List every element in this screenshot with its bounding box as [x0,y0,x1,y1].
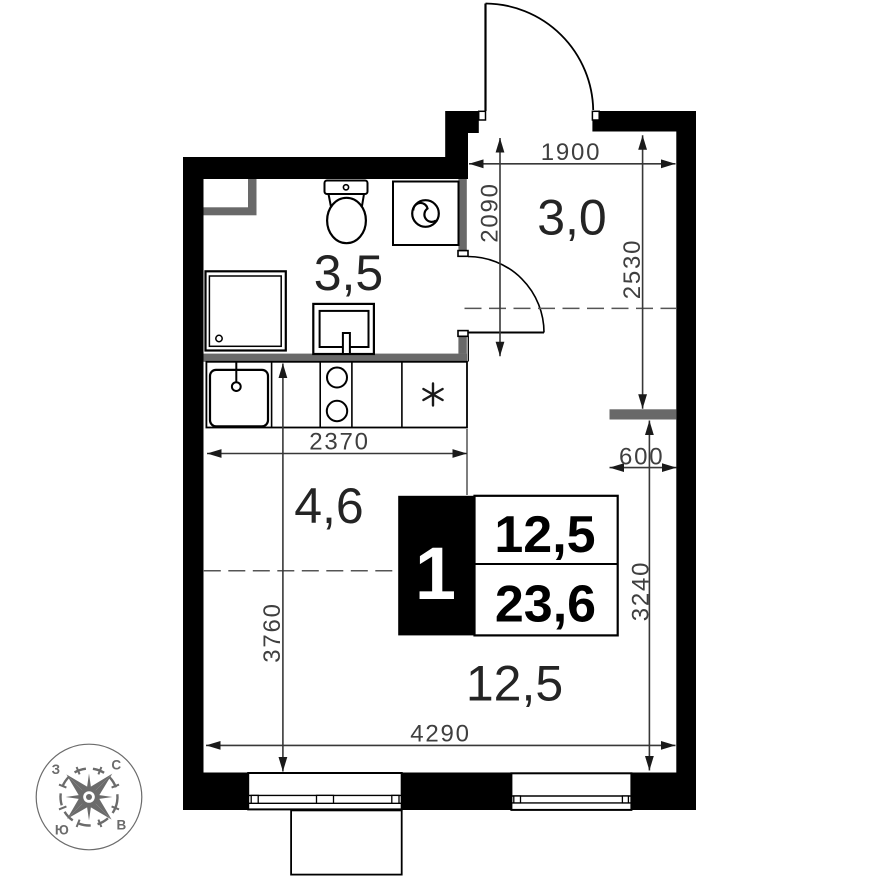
svg-text:1: 1 [415,532,456,615]
svg-text:2090: 2090 [477,182,504,243]
svg-text:23,6: 23,6 [495,576,596,634]
svg-text:3240: 3240 [628,561,655,622]
svg-text:12,5: 12,5 [494,506,595,564]
svg-text:12,5: 12,5 [466,656,563,712]
svg-text:В: В [117,817,127,832]
svg-text:Ю: Ю [55,823,69,838]
svg-text:4290: 4290 [410,721,471,748]
svg-text:600: 600 [619,444,664,471]
svg-text:4,6: 4,6 [294,478,364,534]
svg-text:1900: 1900 [541,139,602,166]
svg-text:3760: 3760 [259,602,286,663]
svg-text:3,5: 3,5 [314,245,384,301]
svg-text:З: З [52,762,60,777]
svg-text:3,0: 3,0 [537,190,607,246]
svg-text:С: С [111,758,121,773]
svg-text:2530: 2530 [619,239,646,300]
svg-text:2370: 2370 [309,429,370,456]
